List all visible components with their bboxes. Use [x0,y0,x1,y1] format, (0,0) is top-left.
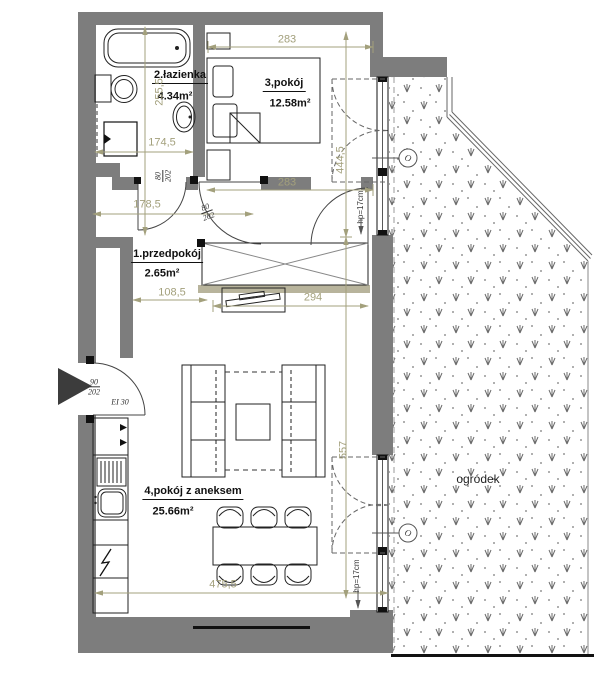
dining-chair [285,507,311,528]
room-label-bedroom: 3,pokój [263,78,306,92]
fridge-icon [120,424,127,446]
dim-living-width-bottom: 475,5 [209,580,237,591]
entrance-arrow-icon [58,368,92,405]
bathtub [104,29,190,67]
dim-right-side-upper: 444,5 [336,146,347,174]
window-bedroom [377,77,388,235]
door-width: 80 [153,172,162,180]
toilet [95,75,137,103]
kitchen-sink [94,489,126,517]
terrace-edge-line [193,626,310,629]
dining-set [213,507,317,585]
entrance-door [58,356,145,423]
dim-corridor-width: 178,5 [133,200,161,211]
dining-chair [251,507,277,528]
dining-chair [285,564,311,585]
parapet-note-lower: hp=17cm [353,559,361,592]
coffee-table [236,404,270,440]
room-area-living: 25.66m² [153,507,194,518]
sofa-left [182,365,225,477]
door-height: 202 [163,170,173,182]
pillow [213,104,237,137]
door-width: 90 [90,377,98,386]
dim-bathroom-width: 174,5 [148,138,176,149]
pillow [213,66,233,97]
dim-bedroom-width-top: 283 [278,35,296,46]
room-label-living: 4,pokój z aneksem [142,486,243,500]
dining-chair [251,564,277,585]
garden-area [389,77,594,657]
room-label-hallway: 1.przedpokój [131,249,203,263]
door-size-bathroom: 80 202 [153,170,172,182]
room-area-hallway: 2.65m² [145,269,180,280]
dim-bathroom-depth: 255,5 [155,78,166,106]
sink-drainer [97,458,126,486]
dim-right-side-lower: 557 [339,441,350,459]
electric-stove-icon [100,549,111,576]
floor-plan: 2.łazienka 4.34m² 3,pokój 12.58m² 1.prze… [0,0,609,688]
fire-rating-label: EI 30 [111,398,129,407]
rug-outline [225,372,282,470]
dim-living-width-top: 294 [304,293,322,304]
room-label-garden: ogródek [456,472,499,486]
kitchen-run [93,418,128,613]
door-size-entrance: 90 202 [88,377,100,396]
dim-bedroom-width-bottom: 283 [278,178,296,189]
dining-table [213,527,317,565]
door-height: 202 [88,387,100,397]
room-area-bedroom: 12.58m² [270,99,311,110]
wardrobe [197,239,368,285]
garden-bottom-edge [391,654,594,657]
parapet-note-upper: hp=17cm [357,190,365,223]
wardrobe-niche-wall [198,285,370,293]
dining-chair [217,507,243,528]
nightstand [207,150,230,180]
bathroom-sink [173,102,195,132]
dim-hallway-width: 108,5 [158,288,186,299]
sofa-right [282,365,325,477]
washing-machine [104,122,137,156]
